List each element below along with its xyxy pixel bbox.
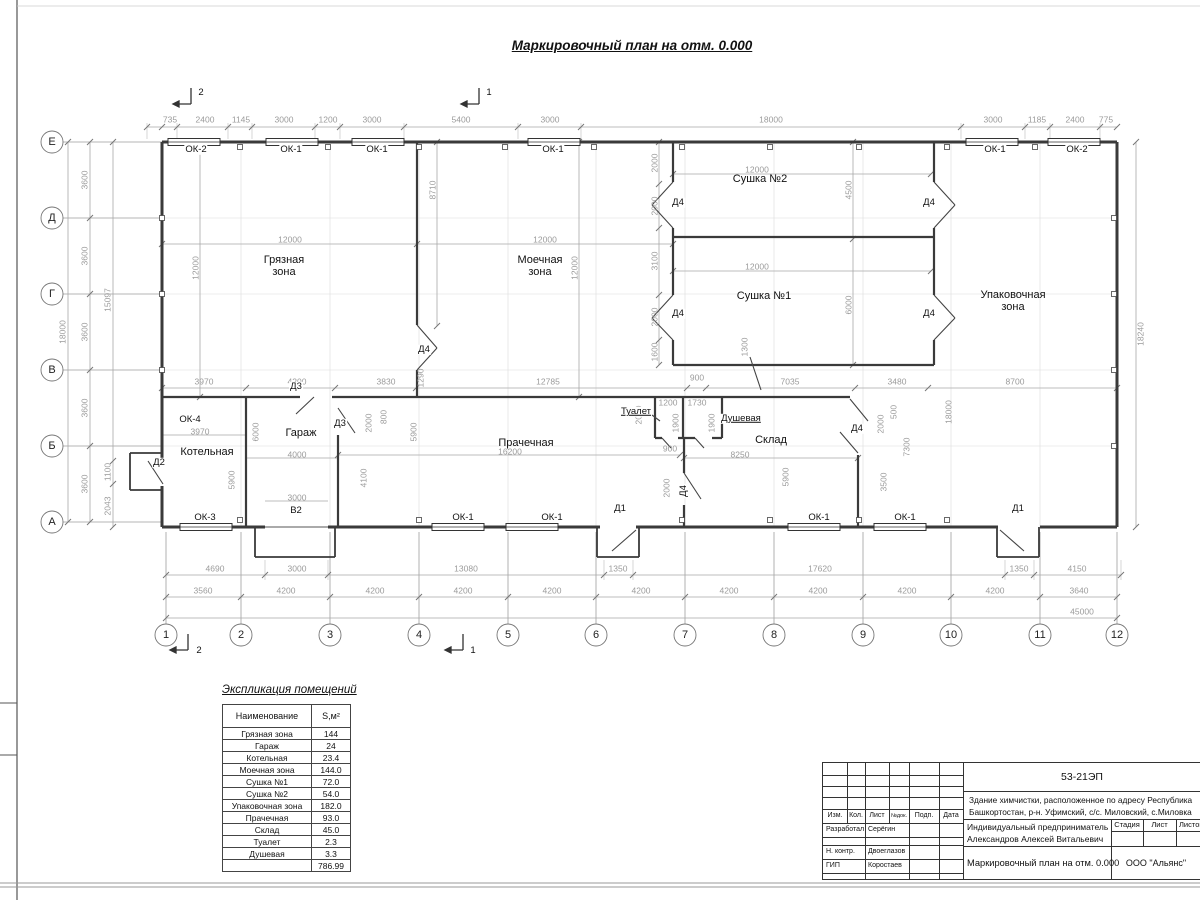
dim-label: 3600 xyxy=(80,475,89,494)
divider xyxy=(823,837,963,838)
sheets-label: Листов xyxy=(1179,819,1200,831)
dim-label: 13080 xyxy=(454,564,478,573)
dim-label: 12000 xyxy=(533,235,557,244)
divider xyxy=(963,791,1200,792)
dim-label: 1900 xyxy=(707,414,716,433)
sig-role: Н. контр. xyxy=(826,845,855,859)
plan-mark: ОК-1 xyxy=(279,145,302,155)
plan-mark: ОК-1 xyxy=(365,145,388,155)
table-header-row: Наименование S,м² xyxy=(223,705,351,728)
dim-label: 3600 xyxy=(80,171,89,190)
plan-mark: Д3 xyxy=(289,382,303,392)
plan-mark: ОК-1 xyxy=(807,513,830,523)
plan-mark: ОК-2 xyxy=(1065,145,1088,155)
plan-mark: Д4 xyxy=(679,484,689,498)
table-cell: 93.0 xyxy=(312,812,351,824)
axis-label: 7 xyxy=(682,629,688,641)
dim-label: 3000 xyxy=(984,115,1003,124)
table-cell: Моечная зона xyxy=(223,764,312,776)
table-cell: 23.4 xyxy=(312,752,351,764)
plan-mark: Д4 xyxy=(671,198,685,208)
dim-label: 6000 xyxy=(844,296,853,315)
dim-label: 4150 xyxy=(1068,564,1087,573)
table-cell: 786.99 xyxy=(312,860,351,872)
header-list: Лист xyxy=(865,809,889,823)
dim-label: 3000 xyxy=(363,115,382,124)
title-block: Изм. Кол. Лист №док. Подп. Дата Разработ… xyxy=(822,762,1200,880)
sig-role: Разработал xyxy=(826,823,864,837)
dim-label: 15097 xyxy=(103,288,112,312)
plan-mark: ОК-1 xyxy=(540,513,563,523)
header-data: Дата xyxy=(939,809,963,823)
axis-label: 4 xyxy=(416,629,422,641)
table-cell: 144.0 xyxy=(312,764,351,776)
dim-label: 2000 xyxy=(650,197,659,216)
table-cell: Сушка №2 xyxy=(223,788,312,800)
table-cell: Душевая xyxy=(223,848,312,860)
axis-label: А xyxy=(48,516,55,528)
dim-label: 4200 xyxy=(986,586,1005,595)
dim-label: 3970 xyxy=(195,377,214,386)
dim-label: 5900 xyxy=(781,468,790,487)
plan-mark: Д2 xyxy=(152,458,166,468)
dim-label: 2043 xyxy=(103,497,112,516)
dim-label: 12000 xyxy=(570,256,579,280)
table-cell: 45.0 xyxy=(312,824,351,836)
table-row: Грязная зона144 xyxy=(223,728,351,740)
plan-mark: ОК-1 xyxy=(983,145,1006,155)
dim-label: 1730 xyxy=(688,398,707,407)
plan-mark: ОК-1 xyxy=(541,145,564,155)
dim-label: 4200 xyxy=(454,586,473,595)
table-row: Упаковочная зона182.0 xyxy=(223,800,351,812)
table-cell: Гараж xyxy=(223,740,312,752)
dim-label: 4500 xyxy=(844,181,853,200)
dim-label: 4200 xyxy=(543,586,562,595)
dim-label: 1185 xyxy=(1028,115,1046,124)
table-cell: Прачечная xyxy=(223,812,312,824)
dim-label: 2000 xyxy=(364,414,373,433)
divider xyxy=(1176,819,1177,846)
doc-number: 53-21ЭП xyxy=(963,763,1200,791)
client-line1: Индивидуальный предприниматель xyxy=(967,821,1108,833)
dim-label: 45000 xyxy=(1070,607,1094,616)
table-row: Сушка №172.0 xyxy=(223,776,351,788)
room-label: Сушка №2 xyxy=(733,173,787,185)
sig-role: ГИП xyxy=(826,859,840,873)
dim-label: 18240 xyxy=(1136,322,1145,346)
dim-label: 2000 xyxy=(650,154,659,173)
stage-label: Стадия xyxy=(1111,819,1143,831)
plan-mark: ОК-4 xyxy=(178,415,201,425)
axis-label: Б xyxy=(48,440,55,452)
dim-label: 5900 xyxy=(409,423,418,442)
dim-label: 3500 xyxy=(879,473,888,492)
dim-label: 8700 xyxy=(1006,377,1025,386)
axis-label: 6 xyxy=(593,629,599,641)
dim-label: 7300 xyxy=(902,438,911,457)
table-cell: Упаковочная зона xyxy=(223,800,312,812)
dim-label: 4200 xyxy=(366,586,385,595)
plan-mark: Туалет xyxy=(620,407,652,417)
table-row: Склад45.0 xyxy=(223,824,351,836)
dim-label: 18000 xyxy=(759,115,783,124)
table-row: Моечная зона144.0 xyxy=(223,764,351,776)
plan-mark: В2 xyxy=(289,506,303,516)
table-cell: 182.0 xyxy=(312,800,351,812)
dim-label: 735 xyxy=(163,115,177,124)
dim-label: 500 xyxy=(889,405,898,419)
sig-name: Серёгин xyxy=(868,823,895,837)
dim-label: 1200 xyxy=(659,398,678,407)
dim-label: 3560 xyxy=(194,586,213,595)
table-cell: Туалет xyxy=(223,836,312,848)
header-podp: Подп. xyxy=(909,809,939,823)
dim-label: 2000 xyxy=(662,479,671,498)
explication-block: Экспликация помещений Наименование S,м² … xyxy=(222,684,357,872)
dim-label: 1300 xyxy=(740,338,749,357)
dim-label: 3640 xyxy=(1070,586,1089,595)
company-name: ООО "Альянс" xyxy=(1111,846,1200,879)
axis-label: 2 xyxy=(238,629,244,641)
dim-label: 12785 xyxy=(536,377,560,386)
dim-label: 3100 xyxy=(650,252,659,271)
dim-label: 2000 xyxy=(650,308,659,327)
dim-label: 1290 xyxy=(416,369,425,388)
dim-label: 4200 xyxy=(632,586,651,595)
dim-label: 4200 xyxy=(720,586,739,595)
dim-label: 3970 xyxy=(191,427,210,436)
dim-label: 3480 xyxy=(888,377,907,386)
plan-mark: 2 xyxy=(197,88,204,98)
sheet-title: Маркировочный план на отм. 0.000 xyxy=(967,846,1109,879)
dim-label: 5400 xyxy=(452,115,471,124)
dim-label: 12000 xyxy=(745,262,769,271)
plan-mark: 1 xyxy=(469,646,476,656)
table-cell: 72.0 xyxy=(312,776,351,788)
dim-label: 3000 xyxy=(275,115,294,124)
dim-label: 8250 xyxy=(731,450,750,459)
dim-label: 3000 xyxy=(541,115,560,124)
plan-mark: ОК-3 xyxy=(193,513,216,523)
plan-mark: Д1 xyxy=(613,504,627,514)
divider xyxy=(823,797,963,798)
axis-label: 8 xyxy=(771,629,777,641)
plan-mark: ОК-1 xyxy=(893,513,916,523)
room-label: Сушка №1 xyxy=(737,290,791,302)
table-row: Прачечная93.0 xyxy=(223,812,351,824)
dim-label: 3600 xyxy=(80,247,89,266)
plan-mark: Д4 xyxy=(922,309,936,319)
dim-label: 4100 xyxy=(359,469,368,488)
axis-label: 3 xyxy=(327,629,333,641)
plan-mark: Д4 xyxy=(417,345,431,355)
axis-label: 11 xyxy=(1034,629,1045,641)
dim-label: 1350 xyxy=(609,564,628,573)
plan-mark: 2 xyxy=(195,646,202,656)
plan-mark: Душевая xyxy=(720,414,762,424)
room-label: Грязная зона xyxy=(264,254,304,278)
dim-label: 12000 xyxy=(278,235,302,244)
dim-label: 6000 xyxy=(251,423,260,442)
plan-mark: ОК-1 xyxy=(451,513,474,523)
dim-label: 3600 xyxy=(80,323,89,342)
plan-mark: Д4 xyxy=(671,309,685,319)
table-cell: 144 xyxy=(312,728,351,740)
dim-label: 3000 xyxy=(288,493,307,502)
explication-title: Экспликация помещений xyxy=(222,684,357,696)
dim-label: 7035 xyxy=(781,377,800,386)
room-label: Гараж xyxy=(285,427,316,439)
dim-label: 12000 xyxy=(191,256,200,280)
dim-label: 2000 xyxy=(876,415,885,434)
client-line2: Александров Алексей Витальевич xyxy=(967,833,1103,845)
axis-label: 12 xyxy=(1111,629,1123,641)
axis-label: В xyxy=(48,364,55,376)
plan-mark: ОК-2 xyxy=(184,145,207,155)
table-cell: 54.0 xyxy=(312,788,351,800)
object-line1: Здание химчистки, расположенное по адрес… xyxy=(969,794,1192,806)
table-row: Котельная23.4 xyxy=(223,752,351,764)
dim-label: 775 xyxy=(1099,115,1113,124)
plan-mark: Д4 xyxy=(922,198,936,208)
plan-mark: Д3 xyxy=(333,419,347,429)
dim-label: 800 xyxy=(379,410,388,424)
plan-mark: Д1 xyxy=(1011,504,1025,514)
drawing-sheet: { "sheet": { "title": "Маркировочный пла… xyxy=(0,0,1200,900)
dim-label: 4200 xyxy=(809,586,828,595)
plan-mark: Д4 xyxy=(850,424,864,434)
dim-label: 1145 xyxy=(232,115,250,124)
dim-label: 17620 xyxy=(808,564,832,573)
room-label: Упаковочная зона xyxy=(980,289,1045,313)
divider xyxy=(1111,831,1200,832)
dim-label: 1100 xyxy=(103,463,112,481)
object-line2: Башкортостан, р-н. Уфимский, с/с. Миловс… xyxy=(969,806,1192,818)
dim-label: 1200 xyxy=(319,115,338,124)
table-cell: Сушка №1 xyxy=(223,776,312,788)
axis-label: Д xyxy=(48,212,55,224)
axis-label: 10 xyxy=(945,629,957,641)
dim-label: 18000 xyxy=(58,320,67,344)
header-izm: Изм. xyxy=(823,809,847,823)
dim-label: 1900 xyxy=(671,414,680,433)
table-row: Душевая3.3 xyxy=(223,848,351,860)
table-cell: Грязная зона xyxy=(223,728,312,740)
axis-label: 5 xyxy=(505,629,511,641)
plan-mark: 1 xyxy=(485,88,492,98)
room-label: Склад xyxy=(755,434,787,446)
room-label: Котельная xyxy=(180,446,233,458)
dim-label: 2400 xyxy=(196,115,215,124)
dim-label: 4200 xyxy=(898,586,917,595)
dim-label: 8710 xyxy=(428,181,437,200)
dim-label: 2400 xyxy=(1066,115,1085,124)
axis-label: Е xyxy=(48,136,55,148)
table-row: Гараж24 xyxy=(223,740,351,752)
room-label: Прачечная xyxy=(498,437,553,449)
dim-label: 900 xyxy=(663,444,677,453)
dim-label: 18000 xyxy=(944,400,953,424)
table-cell: Склад xyxy=(223,824,312,836)
explication-rows: Грязная зона144Гараж24Котельная23.4Моечн… xyxy=(223,728,351,872)
header-ndok: №док. xyxy=(889,809,909,823)
table-cell: 2.3 xyxy=(312,836,351,848)
dim-label: 4200 xyxy=(277,586,296,595)
table-cell xyxy=(223,860,312,872)
sig-name: Коростаев xyxy=(868,859,902,873)
dim-label: 4690 xyxy=(206,564,225,573)
room-label: Моечная зона xyxy=(517,254,562,278)
table-cell: 3.3 xyxy=(312,848,351,860)
column-header-name: Наименование xyxy=(223,705,312,728)
dim-label: 1600 xyxy=(650,343,659,362)
table-row: 786.99 xyxy=(223,860,351,872)
dim-label: 5900 xyxy=(227,471,236,490)
dim-label: 1350 xyxy=(1010,564,1029,573)
sheet-label: Лист xyxy=(1143,819,1176,831)
dim-label: 4000 xyxy=(288,450,307,459)
column-header-area: S,м² xyxy=(312,705,351,728)
divider xyxy=(823,786,963,787)
axis-label: 1 xyxy=(163,629,169,641)
table-cell: 24 xyxy=(312,740,351,752)
sig-name: Двоеглазов xyxy=(868,845,905,859)
axis-label: Г xyxy=(49,288,55,300)
table-row: Сушка №254.0 xyxy=(223,788,351,800)
dim-label: 3000 xyxy=(288,564,307,573)
explication-table: Наименование S,м² Грязная зона144Гараж24… xyxy=(222,704,351,872)
table-cell: Котельная xyxy=(223,752,312,764)
divider xyxy=(823,873,963,874)
header-kol: Кол. xyxy=(847,809,865,823)
dim-label: 3830 xyxy=(377,377,396,386)
dim-label: 900 xyxy=(690,373,704,382)
axis-label: 9 xyxy=(860,629,866,641)
dim-label: 3600 xyxy=(80,399,89,418)
table-row: Туалет2.3 xyxy=(223,836,351,848)
divider xyxy=(823,775,963,776)
